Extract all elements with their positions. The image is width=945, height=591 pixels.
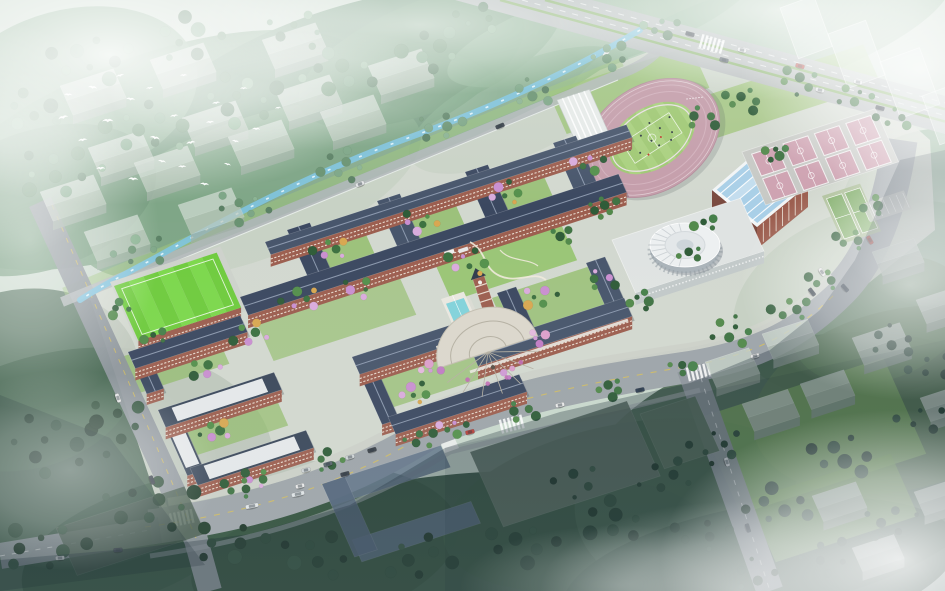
fog-patch: [100, 30, 500, 150]
scene-svg: Aerial rendering of a school campus mast…: [0, 0, 945, 591]
aerial-campus-rendering: Aerial rendering of a school campus mast…: [0, 0, 945, 591]
